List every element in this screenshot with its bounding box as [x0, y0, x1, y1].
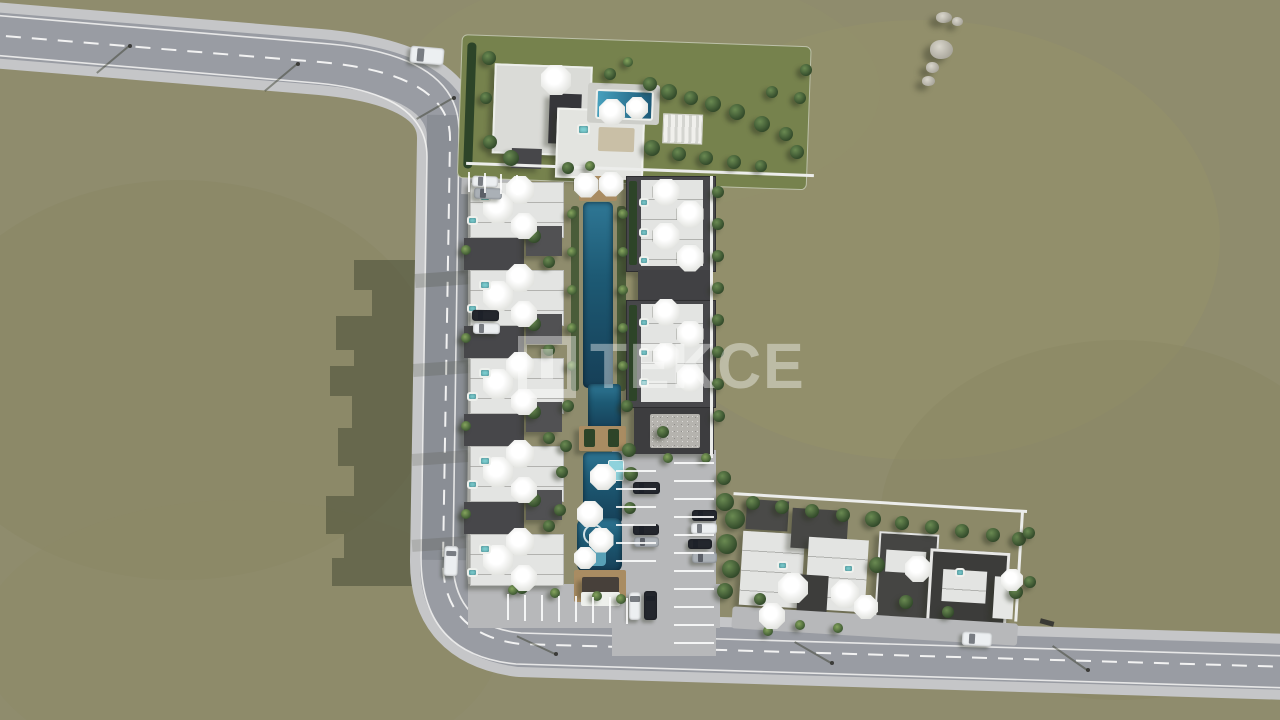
tree [622, 443, 636, 457]
parking-line [674, 498, 714, 500]
tree [618, 247, 628, 257]
umbrella [511, 565, 537, 591]
tree [986, 528, 1000, 542]
jacuzzi [639, 198, 649, 207]
car-windshield [417, 48, 425, 61]
parking-line [674, 642, 714, 644]
tree [717, 471, 731, 485]
tree [543, 432, 555, 444]
umbrella [905, 556, 931, 582]
jacuzzi [777, 561, 788, 570]
umbrella [577, 501, 603, 527]
tree [657, 426, 669, 438]
aerial-site-plan-render: TEKCE [0, 0, 1280, 720]
tree [482, 51, 496, 65]
tree [604, 68, 616, 80]
tree [684, 91, 698, 105]
tree [712, 314, 724, 326]
umbrella [511, 213, 537, 239]
car [472, 310, 499, 321]
parking-line [674, 570, 714, 572]
bridge-planter [608, 429, 619, 447]
parking-line [592, 597, 594, 623]
jacuzzi [843, 564, 854, 573]
umbrella [541, 65, 571, 95]
tree [925, 520, 939, 534]
tree [775, 500, 789, 514]
tree [643, 77, 657, 91]
tree [567, 323, 577, 333]
tree [461, 245, 471, 255]
tree [794, 92, 806, 104]
tree [554, 504, 566, 516]
tree [836, 508, 850, 522]
watermark: TEKCE [518, 336, 817, 398]
tree [560, 440, 572, 452]
parking-line [500, 174, 502, 194]
car [688, 539, 712, 549]
street-lamp [554, 652, 558, 656]
rock [922, 76, 935, 86]
tree [699, 151, 713, 165]
car-windshield [693, 540, 698, 548]
block-a-planter [629, 181, 637, 265]
tree [585, 161, 595, 171]
villa-patio [598, 127, 635, 152]
umbrella [590, 464, 616, 490]
car-windshield [479, 324, 485, 332]
tree [712, 218, 724, 230]
umbrella [589, 528, 614, 553]
tree [705, 96, 721, 112]
tekce-logo-icon [518, 336, 576, 398]
umbrella [574, 173, 599, 198]
car [473, 323, 500, 334]
tree [790, 145, 804, 159]
parking-line [674, 624, 714, 626]
tree [727, 155, 741, 169]
block-connector [638, 270, 710, 300]
parking-line [616, 524, 656, 526]
street-lamp [128, 44, 132, 48]
parking-line [626, 598, 628, 624]
car [644, 591, 657, 620]
tree [480, 92, 492, 104]
parking-line [616, 542, 656, 544]
tree [895, 516, 909, 530]
tree [766, 86, 778, 98]
parking-line [674, 588, 714, 590]
tree [661, 84, 677, 100]
tree [833, 623, 843, 633]
tree [543, 256, 555, 268]
rock [952, 17, 963, 26]
parking-line [507, 594, 509, 620]
tree [503, 150, 519, 166]
car-windshield [639, 525, 644, 533]
car-windshield [478, 311, 484, 319]
parking-line [674, 516, 714, 518]
tree [779, 127, 793, 141]
tree [712, 186, 724, 198]
tree [618, 285, 628, 295]
tree [461, 509, 471, 519]
car [691, 523, 717, 534]
tree [713, 410, 725, 422]
tree [624, 502, 636, 514]
tree [869, 557, 885, 573]
tree [725, 509, 745, 529]
street-lamp [296, 62, 300, 66]
jacuzzi [479, 544, 491, 554]
car [443, 546, 458, 576]
jacuzzi [467, 568, 478, 577]
parking-line [674, 462, 714, 464]
car-windshield [968, 633, 975, 644]
tree [483, 135, 497, 149]
tree [663, 453, 673, 463]
tree [461, 421, 471, 431]
jacuzzi [479, 368, 491, 378]
rock [930, 40, 953, 59]
street-lamp [830, 661, 834, 665]
tree [754, 593, 766, 605]
tree [712, 250, 724, 262]
umbrella [599, 99, 625, 125]
parking-line [558, 596, 560, 622]
parking-line [468, 172, 470, 192]
parking-line [516, 175, 518, 195]
parking-line [674, 534, 714, 536]
parking-line [541, 595, 543, 621]
jacuzzi [467, 392, 478, 401]
rock [936, 12, 952, 23]
jacuzzi [467, 480, 478, 489]
parking-line [674, 552, 714, 554]
tree [618, 209, 628, 219]
street-lamp [1086, 668, 1090, 672]
tree [865, 511, 881, 527]
tree [543, 520, 555, 532]
jacuzzi [467, 216, 478, 225]
street-lamp [452, 96, 456, 100]
jacuzzi [639, 256, 649, 265]
tree [567, 285, 577, 295]
jacuzzi [955, 568, 965, 577]
car [962, 631, 993, 647]
tree [1023, 527, 1035, 539]
tree [717, 534, 737, 554]
tree [899, 595, 913, 609]
parking-line [616, 506, 656, 508]
tree [746, 496, 760, 510]
car-windshield [646, 596, 656, 601]
car [629, 592, 641, 620]
tree [795, 620, 805, 630]
tree [1024, 576, 1036, 588]
tree [754, 116, 770, 132]
tree [755, 160, 767, 172]
tree [461, 333, 471, 343]
tree [716, 493, 734, 511]
umbrella [599, 172, 624, 197]
jacuzzi [479, 456, 491, 466]
car [409, 46, 444, 66]
umbrella [511, 477, 537, 503]
tree [644, 140, 660, 156]
tree [562, 400, 574, 412]
car-windshield [478, 177, 483, 186]
tree [729, 104, 745, 120]
wall-east [1014, 512, 1024, 622]
parking-line [674, 606, 714, 608]
jacuzzi [639, 228, 649, 237]
jacuzzi [479, 280, 491, 290]
tree [567, 209, 577, 219]
umbrella [778, 573, 808, 603]
tree [717, 583, 733, 599]
watermark-text: TEKCE [590, 336, 806, 396]
tree [722, 560, 740, 578]
logo-stem [541, 349, 553, 379]
parking-line [616, 488, 656, 490]
parking-line [575, 596, 577, 622]
parking-line [674, 480, 714, 482]
car-windshield [630, 596, 639, 601]
jacuzzi [577, 124, 590, 135]
tree [567, 247, 577, 257]
tree [672, 147, 686, 161]
jacuzzi [639, 318, 649, 327]
car-windshield [698, 553, 703, 561]
umbrella [759, 603, 785, 629]
tree [955, 524, 969, 538]
tree [562, 162, 574, 174]
parking-line [616, 560, 656, 562]
rock [926, 62, 939, 73]
tree [712, 282, 724, 294]
parking-line [484, 173, 486, 193]
pergola-sunbeds [662, 113, 703, 144]
tree [800, 64, 812, 76]
car-windshield [446, 551, 457, 557]
tree [616, 594, 626, 604]
tree [805, 504, 819, 518]
umbrella [511, 301, 537, 327]
tree [623, 57, 633, 67]
tree [942, 606, 954, 618]
parking-line [616, 470, 656, 472]
car [474, 188, 502, 200]
tree [556, 466, 568, 478]
bridge-planter [584, 429, 595, 447]
car-windshield [697, 524, 702, 532]
parking-line [524, 595, 526, 621]
parking-line [609, 597, 611, 623]
